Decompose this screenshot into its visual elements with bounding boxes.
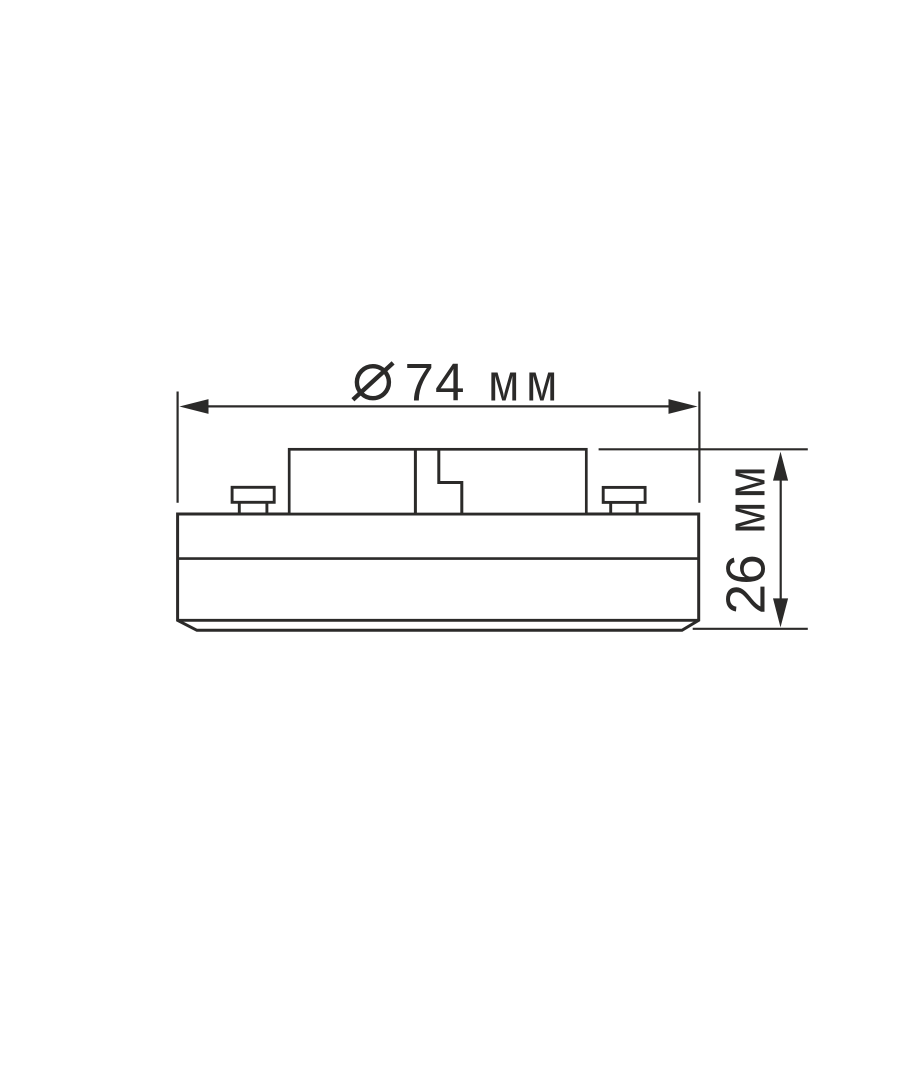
svg-text:26: 26 (714, 555, 776, 615)
svg-text:мм: мм (715, 463, 776, 534)
svg-text:мм: мм (488, 353, 564, 412)
svg-text:74: 74 (405, 354, 466, 413)
